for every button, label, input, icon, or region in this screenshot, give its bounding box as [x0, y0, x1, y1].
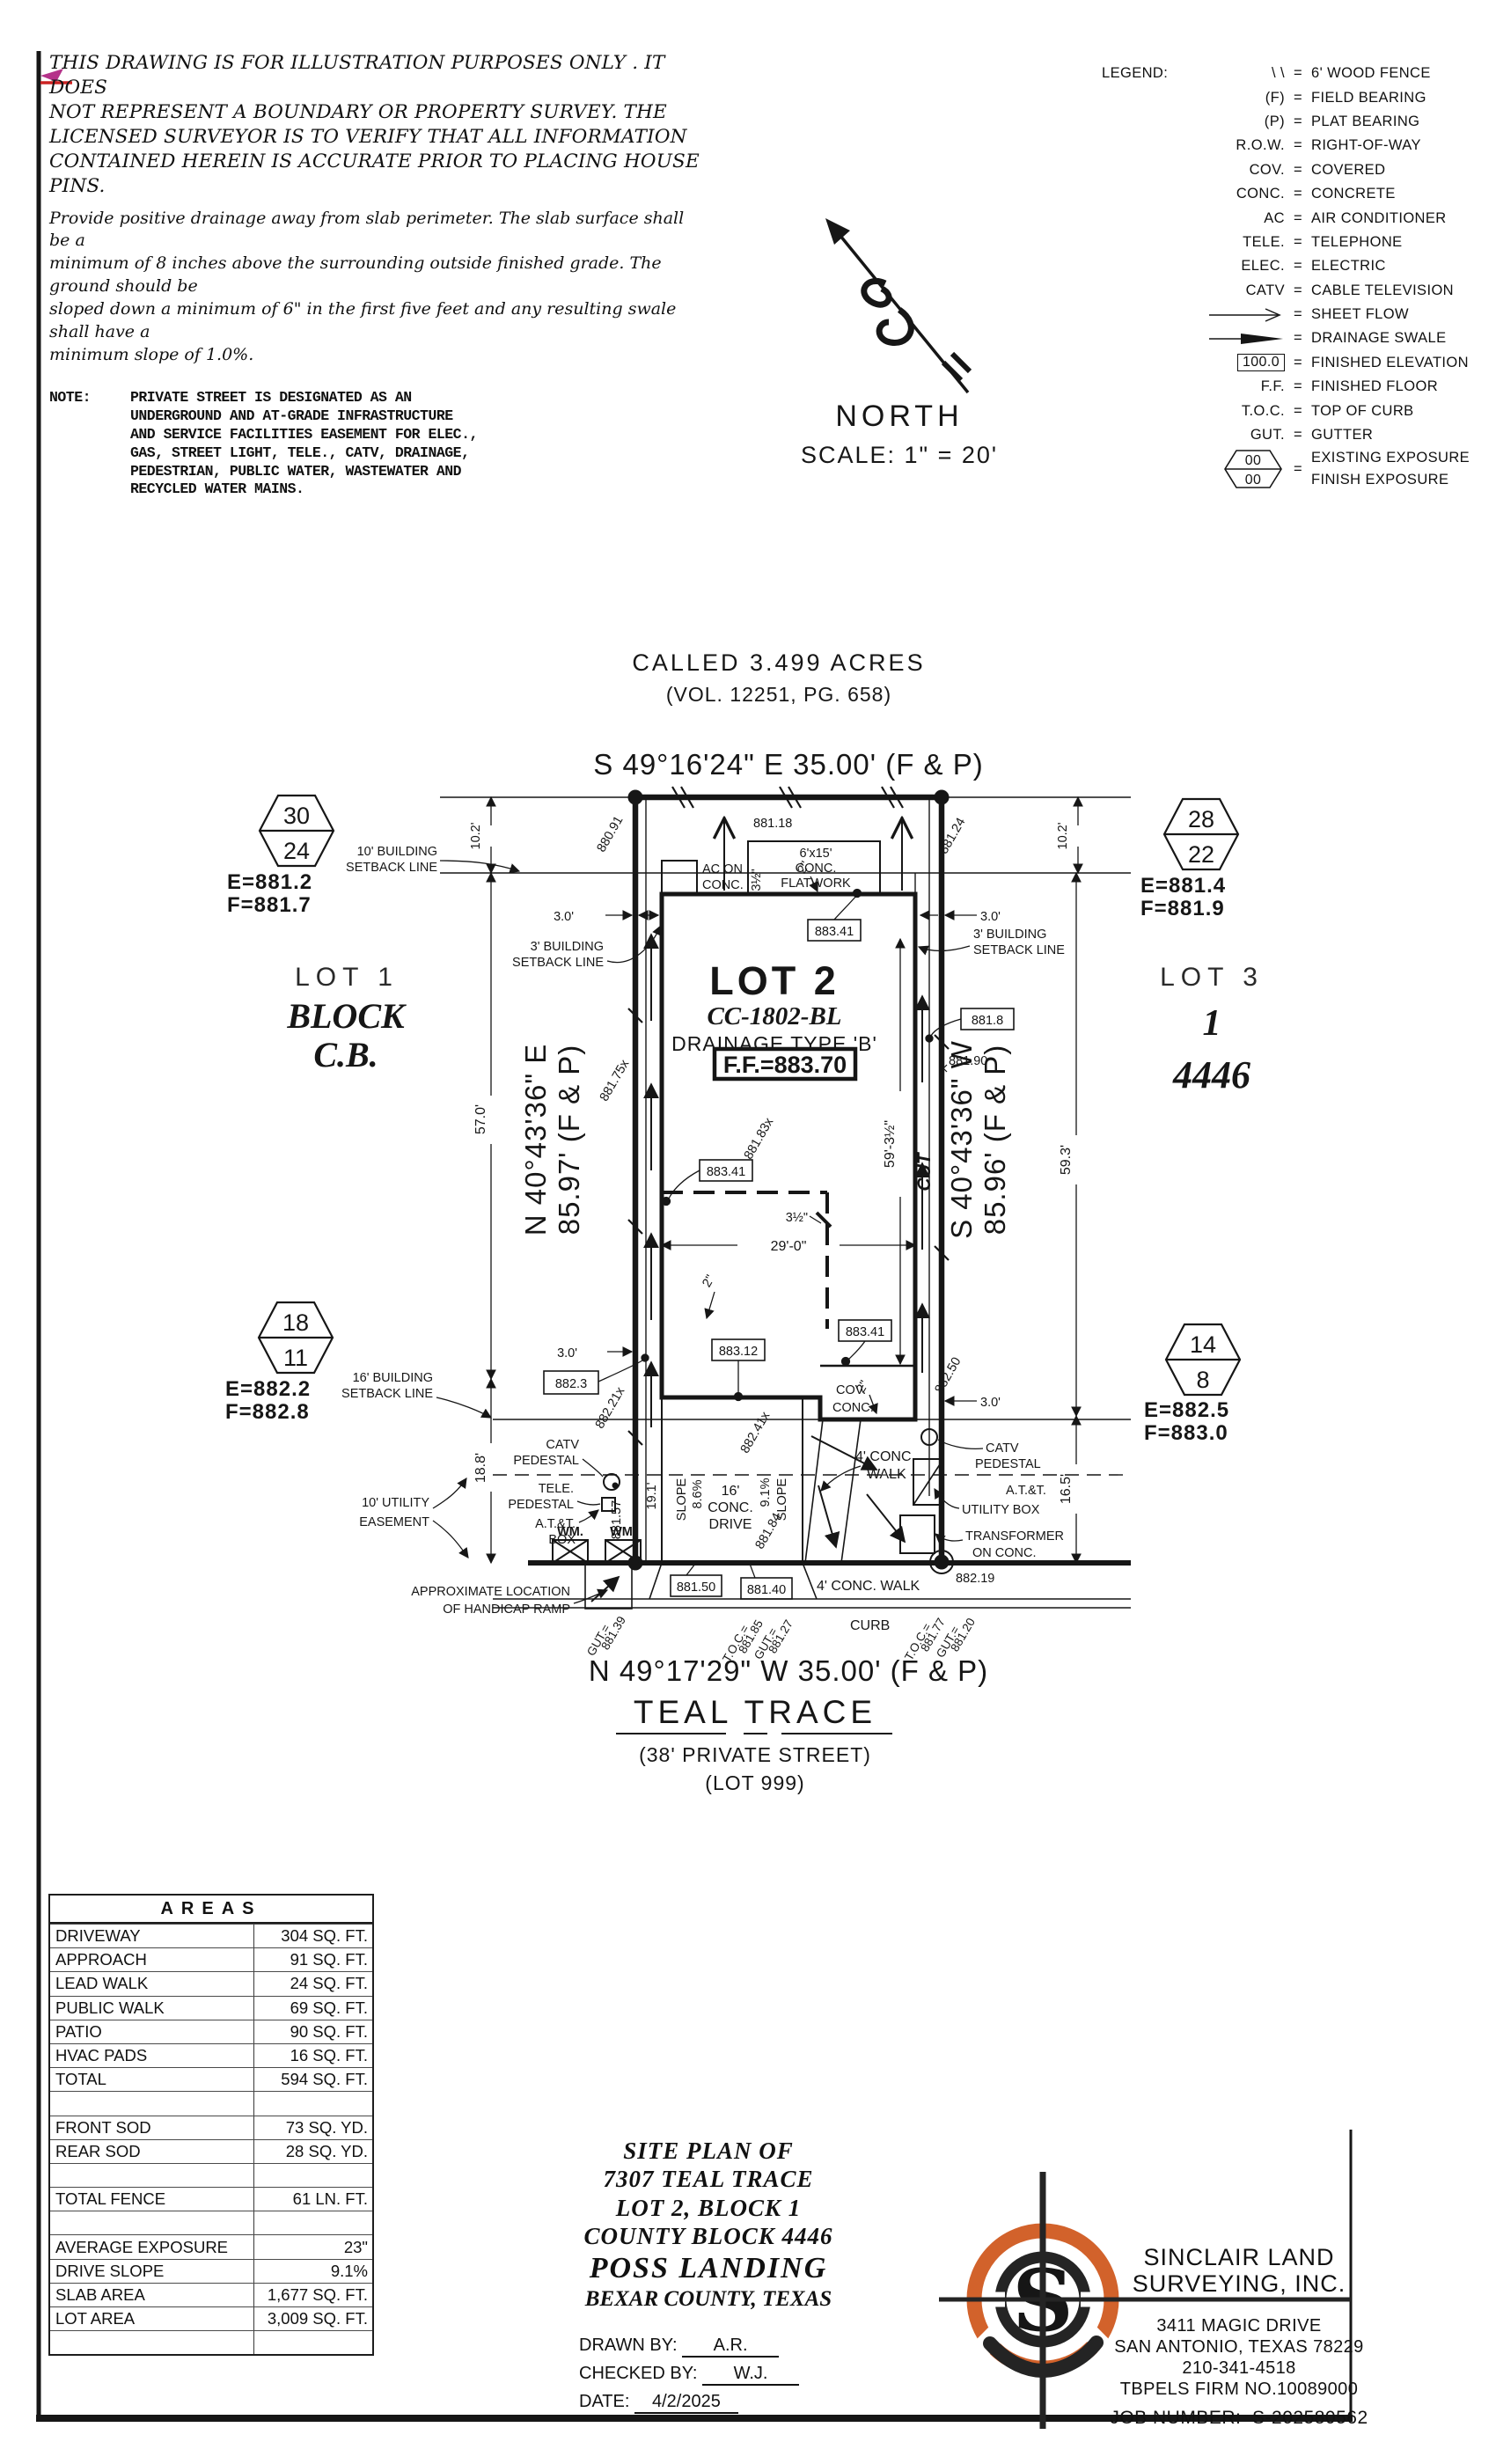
lot2-label: LOT 2 [709, 958, 840, 1003]
legend-abbr: CONC. [1183, 182, 1285, 206]
svg-text:UTILITY BOX: UTILITY BOX [962, 1503, 1040, 1517]
svg-text:11: 11 [283, 1345, 308, 1371]
svg-text:WM.: WM. [557, 1525, 583, 1539]
table-row: APPROACH91 SQ. FT. [50, 1947, 372, 1971]
legend-desc: EXISTING EXPOSUREFINISH EXPOSURE [1311, 447, 1494, 491]
svg-text:CURB: CURB [850, 1618, 890, 1633]
table-row: SLAB AREA1,677 SQ. FT. [50, 2283, 372, 2306]
svg-text:SLOPE: SLOPE [675, 1478, 689, 1521]
legend-desc: CONCRETE [1311, 182, 1494, 206]
svg-text:9.1%: 9.1% [759, 1478, 773, 1507]
hexagon-se: 14 8 [1166, 1324, 1240, 1395]
svg-text:PEDESTAL: PEDESTAL [508, 1498, 574, 1512]
note-label: NOTE: [49, 389, 130, 499]
disclaimer-block: THIS DRAWING IS FOR ILLUSTRATION PURPOSE… [49, 51, 700, 499]
svg-text:SETBACK LINE: SETBACK LINE [341, 1387, 433, 1401]
svg-text:85.97' (F & P): 85.97' (F & P) [553, 1045, 585, 1236]
svg-text:00: 00 [1245, 473, 1262, 488]
svg-text:10.2': 10.2' [469, 822, 483, 849]
hex-nw-existing: E=881.2 [227, 870, 312, 894]
areas-table-title: AREAS [50, 1896, 372, 1924]
svg-text:DRIVE: DRIVE [709, 1517, 752, 1532]
svg-text:2": 2" [700, 1272, 717, 1289]
svg-text:3' BUILDING: 3' BUILDING [531, 940, 604, 954]
legend-abbr: COV. [1183, 158, 1285, 182]
note-line: PEDESTRIAN, PUBLIC WATER, WASTEWATER AND [130, 463, 478, 481]
svg-text:00: 00 [1245, 453, 1262, 468]
svg-text:6'x15': 6'x15' [800, 847, 832, 861]
block1-label: 1 [1203, 1003, 1221, 1044]
note-line: GAS, STREET LIGHT, TELE., CATV, DRAINAGE… [130, 444, 478, 463]
legend-abbr: ELEC. [1183, 254, 1285, 278]
job-number: JOB NUMBER: S-202580562 [1089, 2408, 1389, 2429]
svg-text:883.41: 883.41 [815, 925, 854, 939]
svg-text:881.75x: 881.75x [598, 1057, 633, 1104]
svg-text:CATV: CATV [546, 1438, 579, 1452]
legend-abbr: (F) [1183, 85, 1285, 109]
svg-text:882.50: 882.50 [933, 1355, 964, 1396]
table-row: LEAD WALK24 SQ. FT. [50, 1971, 372, 1995]
svg-text:3.0': 3.0' [980, 910, 1001, 924]
svg-text:APPROXIMATE LOCATION: APPROXIMATE LOCATION [411, 1585, 570, 1599]
svg-text:880.91: 880.91 [595, 814, 627, 854]
exposure-hexagon-icon: 00 00 [1183, 447, 1285, 491]
svg-text:85.96' (F & P): 85.96' (F & P) [979, 1045, 1011, 1236]
note-body: PRIVATE STREET IS DESIGNATED AS AN UNDER… [130, 389, 478, 499]
svg-text:3½": 3½" [750, 869, 764, 891]
svg-text:19.1': 19.1' [645, 1482, 659, 1509]
lot3-label: LOT 3 [1160, 963, 1264, 992]
north-arrow-icon [825, 218, 970, 392]
svg-text:SETBACK LINE: SETBACK LINE [973, 943, 1065, 957]
legend-desc: ELECTRIC [1311, 254, 1494, 278]
company-block: SINCLAIR LAND SURVEYING, INC. 3411 MAGIC… [1089, 2244, 1389, 2429]
svg-text:883.12: 883.12 [719, 1345, 758, 1359]
note-line: PRIVATE STREET IS DESIGNATED AS AN [130, 389, 478, 407]
legend-desc: TELEPHONE [1311, 231, 1494, 254]
finished-floor: F.F.=883.70 [723, 1052, 847, 1078]
table-row: FRONT SOD73 SQ. YD. [50, 2116, 372, 2139]
svg-text:30: 30 [283, 803, 310, 829]
legend-abbr: F.F. [1183, 375, 1285, 399]
svg-text:SETBACK LINE: SETBACK LINE [512, 956, 604, 970]
svg-text:18: 18 [282, 1309, 309, 1336]
table-row: TOTAL FENCE61 LN. FT. [50, 2187, 372, 2211]
legend-desc: GUTTER [1311, 423, 1494, 447]
svg-text:CUT: CUT [914, 1151, 935, 1191]
legend-abbr: R.O.W. [1183, 134, 1285, 158]
svg-text:EASEMENT: EASEMENT [359, 1515, 429, 1529]
legend-abbr: T.O.C. [1183, 399, 1285, 422]
date-value: 4/2/2025 [634, 2392, 738, 2414]
note-line: UNDERGROUND AND AT-GRADE INFRASTRUCTURE [130, 407, 478, 426]
disclaimer-line: CONTAINED HEREIN IS ACCURATE PRIOR TO PL… [49, 150, 700, 199]
svg-text:10.2': 10.2' [1056, 822, 1070, 849]
legend-abbr: AC [1183, 206, 1285, 230]
svg-text:881.83x: 881.83x [742, 1115, 777, 1162]
svg-text:3' BUILDING: 3' BUILDING [973, 928, 1046, 942]
transformer-icon [900, 1515, 935, 1553]
svg-text:14: 14 [1190, 1331, 1216, 1358]
subdivision-name: POSS LANDING [519, 2251, 898, 2285]
svg-text:18.8': 18.8' [473, 1453, 488, 1483]
table-row: DRIVEWAY304 SQ. FT. [50, 1924, 372, 1947]
svg-text:881.8: 881.8 [972, 1014, 1003, 1028]
svg-text:OF HANDICAP RAMP: OF HANDICAP RAMP [443, 1602, 570, 1617]
svg-text:881.40: 881.40 [747, 1583, 786, 1597]
svg-text:4' CONC. WALK: 4' CONC. WALK [817, 1579, 920, 1594]
svg-text:S 40°43'36" W: S 40°43'36" W [945, 1040, 978, 1239]
drawn-by-block: DRAWN BY: A.R. CHECKED BY: W.J. DATE: 4/… [579, 2336, 898, 2414]
hexagon-nw: 30 24 [260, 796, 334, 866]
svg-text:8: 8 [1196, 1367, 1209, 1393]
note-line: AND SERVICE FACILITIES EASEMENT FOR ELEC… [130, 426, 478, 444]
svg-text:10' BUILDING: 10' BUILDING [357, 845, 437, 859]
svg-text:882.19: 882.19 [956, 1572, 994, 1586]
table-row [50, 2211, 372, 2234]
svg-text:881.57: 881.57 [610, 1500, 624, 1539]
svg-text:CONC.: CONC. [708, 1500, 753, 1515]
checked-by-row: CHECKED BY: W.J. [579, 2364, 898, 2386]
street-private: (38' PRIVATE STREET) [639, 1743, 871, 1766]
drainage-line: sloped down a minimum of 6" in the first… [49, 298, 700, 344]
date-row: DATE: 4/2/2025 [579, 2392, 898, 2414]
title-line: LOT 2, BLOCK 1 [519, 2194, 898, 2222]
svg-text:882.41x: 882.41x [738, 1409, 774, 1456]
legend-abbr: CATV [1183, 279, 1285, 303]
called-acres: CALLED 3.499 ACRES [632, 649, 925, 676]
svg-text:FLATWORK: FLATWORK [781, 876, 851, 891]
drainage-line: Provide positive drainage away from slab… [49, 208, 700, 253]
legend-abbr: GUT. [1183, 423, 1285, 447]
legend-desc: COVERED [1311, 158, 1494, 182]
hex-sw-finish: F=882.8 [225, 1400, 310, 1424]
drainage-note: Provide positive drainage away from slab… [49, 208, 700, 367]
volume-page: (VOL. 12251, PG. 658) [666, 683, 891, 706]
svg-text:WALK: WALK [867, 1467, 906, 1482]
checked-by-value: W.J. [702, 2364, 799, 2386]
svg-text:CONC.: CONC. [702, 878, 744, 892]
legend-desc: AIR CONDITIONER [1311, 206, 1494, 230]
svg-text:59.3': 59.3' [1059, 1145, 1074, 1175]
table-row: LOT AREA3,009 SQ. FT. [50, 2306, 372, 2330]
legend-abbr: (P) [1183, 110, 1285, 134]
svg-text:22: 22 [1188, 841, 1214, 868]
svg-text:3.0': 3.0' [554, 910, 574, 924]
legend: LEGEND: \ \ =6' WOOD FENCE (F) =FIELD BE… [1102, 62, 1494, 491]
legend-desc: 6' WOOD FENCE [1311, 62, 1494, 85]
legend-desc: TOP OF CURB [1311, 399, 1494, 422]
drawn-by-row: DRAWN BY: A.R. [579, 2336, 898, 2358]
hexagon-ne: 28 22 [1164, 799, 1238, 869]
table-row: TOTAL594 SQ. FT. [50, 2067, 372, 2091]
svg-text:N 40°43'36" E: N 40°43'36" E [519, 1044, 552, 1236]
finished-elevation-symbol: 100.0 [1183, 351, 1285, 375]
svg-text:CATV: CATV [986, 1441, 1019, 1456]
svg-text:16.5': 16.5' [1059, 1474, 1074, 1504]
street-lot999: (LOT 999) [705, 1771, 804, 1794]
drainage-line: minimum of 8 inches above the surroundin… [49, 253, 700, 298]
legend-desc: FIELD BEARING [1311, 85, 1494, 109]
bearing-top: S 49°16'24" E 35.00' (F & P) [593, 748, 983, 781]
disclaimer-line: LICENSED SURVEYOR IS TO VERIFY THAT ALL … [49, 125, 700, 150]
disclaimer-line: THIS DRAWING IS FOR ILLUSTRATION PURPOSE… [49, 51, 700, 100]
lot1-label: LOT 1 [295, 963, 399, 992]
flow-arrows [651, 820, 922, 1547]
svg-text:883.41: 883.41 [707, 1165, 745, 1179]
drainage-swale-arrow-icon [1183, 326, 1285, 350]
svg-text:TELE.: TELE. [539, 1482, 574, 1496]
scale-label: SCALE: 1" = 20' [801, 442, 998, 468]
table-row: AVERAGE EXPOSURE23" [50, 2234, 372, 2258]
areas-table: AREAS DRIVEWAY304 SQ. FT. APPROACH91 SQ.… [48, 1894, 374, 2356]
table-row: REAR SOD28 SQ. YD. [50, 2139, 372, 2163]
north-label: NORTH [835, 400, 963, 433]
svg-text:8.6%: 8.6% [691, 1479, 705, 1508]
table-row [50, 2330, 372, 2354]
legend-desc: FINISHED ELEVATION [1311, 351, 1494, 375]
table-row [50, 2091, 372, 2115]
svg-text:ON CONC.: ON CONC. [972, 1546, 1037, 1560]
svg-text:A.T.&T.: A.T.&T. [1006, 1484, 1046, 1498]
legend-abbr: TELE. [1183, 231, 1285, 254]
hexagon-sw: 18 11 [259, 1302, 333, 1373]
title-block: SITE PLAN OF 7307 TEAL TRACE LOT 2, BLOC… [519, 2137, 898, 2420]
svg-text:3.0': 3.0' [980, 1396, 1001, 1410]
title-line: 7307 TEAL TRACE [519, 2165, 898, 2193]
cb-label: C.B. [313, 1035, 378, 1074]
svg-text:CONC.: CONC. [832, 1401, 874, 1415]
title-line: SITE PLAN OF [519, 2137, 898, 2165]
county-name: BEXAR COUNTY, TEXAS [519, 2285, 898, 2313]
title-line: COUNTY BLOCK 4446 [519, 2222, 898, 2250]
catv-pedestal-icon [604, 1474, 620, 1490]
company-name: SURVEYING, INC. [1089, 2270, 1389, 2297]
disclaimer-line: NOT REPRESENT A BOUNDARY OR PROPERTY SUR… [49, 100, 700, 125]
svg-text:TRANSFORMER: TRANSFORMER [965, 1529, 1064, 1544]
sheet-flow-arrow-icon [1183, 303, 1285, 326]
svg-text:PEDESTAL: PEDESTAL [975, 1457, 1041, 1471]
svg-text:883.41: 883.41 [846, 1325, 884, 1339]
svg-text:10' UTILITY: 10' UTILITY [362, 1496, 429, 1510]
legend-desc: SHEET FLOW [1311, 303, 1494, 326]
svg-text:AC ON: AC ON [702, 862, 743, 876]
svg-text:PEDESTAL: PEDESTAL [513, 1454, 579, 1468]
svg-text:57.0': 57.0' [473, 1104, 488, 1134]
svg-text:28: 28 [1188, 806, 1214, 832]
table-row: DRIVE SLOPE9.1% [50, 2259, 372, 2283]
bearing-bottom: N 49°17'29" W 35.00' (F & P) [589, 1654, 988, 1687]
block-label: BLOCK [286, 996, 407, 1036]
svg-text:SETBACK LINE: SETBACK LINE [346, 861, 437, 875]
svg-text:3½": 3½" [786, 1211, 808, 1225]
hex-se-existing: E=882.5 [1144, 1398, 1229, 1422]
table-row: PATIO90 SQ. FT. [50, 2020, 372, 2043]
table-row: HVAC PADS16 SQ. FT. [50, 2043, 372, 2067]
legend-desc: CABLE TELEVISION [1311, 279, 1494, 303]
svg-text:881.84: 881.84 [753, 1511, 785, 1551]
hex-sw-existing: E=882.2 [225, 1377, 311, 1401]
svg-text:16': 16' [722, 1484, 740, 1499]
disclaimer-text: THIS DRAWING IS FOR ILLUSTRATION PURPOSE… [49, 51, 700, 199]
svg-text:882.3: 882.3 [555, 1377, 587, 1391]
street-name: TEAL TRACE [634, 1694, 876, 1730]
svg-text:59'-3½": 59'-3½" [883, 1120, 898, 1168]
cc-number: CC-1802-BL [707, 1002, 841, 1030]
drainage-line: minimum slope of 1.0%. [49, 344, 700, 367]
svg-text:4' CONC.: 4' CONC. [855, 1449, 915, 1464]
drawn-by-value: A.R. [682, 2336, 779, 2358]
county-block-label: 4446 [1172, 1053, 1250, 1096]
site-plan-sheet: NORTH SCALE: 1" = 20' CALLED 3.499 ACRES… [0, 0, 1496, 2464]
note-line: RECYCLED WATER MAINS. [130, 480, 478, 499]
private-street-note: NOTE: PRIVATE STREET IS DESIGNATED AS AN… [49, 389, 700, 499]
hex-ne-finish: F=881.9 [1140, 897, 1225, 920]
svg-text:881.50: 881.50 [677, 1580, 715, 1595]
legend-desc: RIGHT-OF-WAY [1311, 134, 1494, 158]
legend-desc: FINISHED FLOOR [1311, 375, 1494, 399]
legend-title: LEGEND: [1102, 62, 1183, 85]
svg-text:29'-0": 29'-0" [771, 1239, 807, 1254]
hex-ne-existing: E=881.4 [1140, 874, 1226, 898]
hex-nw-finish: F=881.7 [227, 893, 312, 917]
legend-desc: PLAT BEARING [1311, 110, 1494, 134]
svg-text:24: 24 [283, 838, 310, 864]
table-row [50, 2163, 372, 2187]
svg-text:16' BUILDING: 16' BUILDING [353, 1371, 433, 1385]
table-row: PUBLIC WALK69 SQ. FT. [50, 1996, 372, 2020]
hex-se-finish: F=883.0 [1144, 1421, 1228, 1445]
svg-text:3.0': 3.0' [557, 1346, 577, 1360]
company-name: SINCLAIR LAND [1089, 2244, 1389, 2270]
legend-desc: DRAINAGE SWALE [1311, 326, 1494, 350]
company-address: 3411 MAGIC DRIVE SAN ANTONIO, TEXAS 7822… [1089, 2315, 1389, 2400]
wood-fence-icon: \ \ [1183, 62, 1285, 85]
svg-text:881.18: 881.18 [753, 817, 792, 831]
